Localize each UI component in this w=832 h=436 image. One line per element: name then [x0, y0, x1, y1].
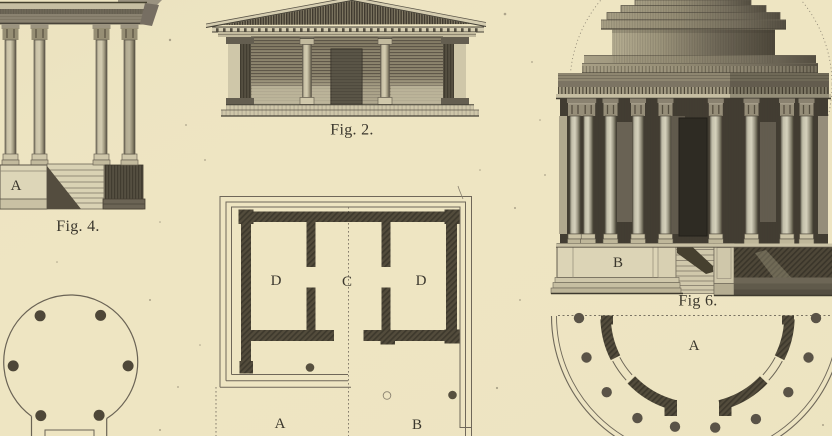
svg-text:C: C	[342, 274, 352, 290]
svg-text:A: A	[275, 416, 286, 432]
svg-text:A: A	[689, 338, 700, 354]
svg-text:D: D	[416, 273, 427, 289]
svg-text:D: D	[271, 273, 282, 289]
svg-text:A: A	[11, 178, 22, 194]
svg-text:Fig 6.: Fig 6.	[678, 293, 717, 310]
svg-text:Fig. 4.: Fig. 4.	[56, 218, 99, 235]
svg-text:B: B	[613, 255, 623, 271]
svg-text:Fig. 2.: Fig. 2.	[330, 122, 373, 139]
svg-text:B: B	[412, 417, 422, 433]
